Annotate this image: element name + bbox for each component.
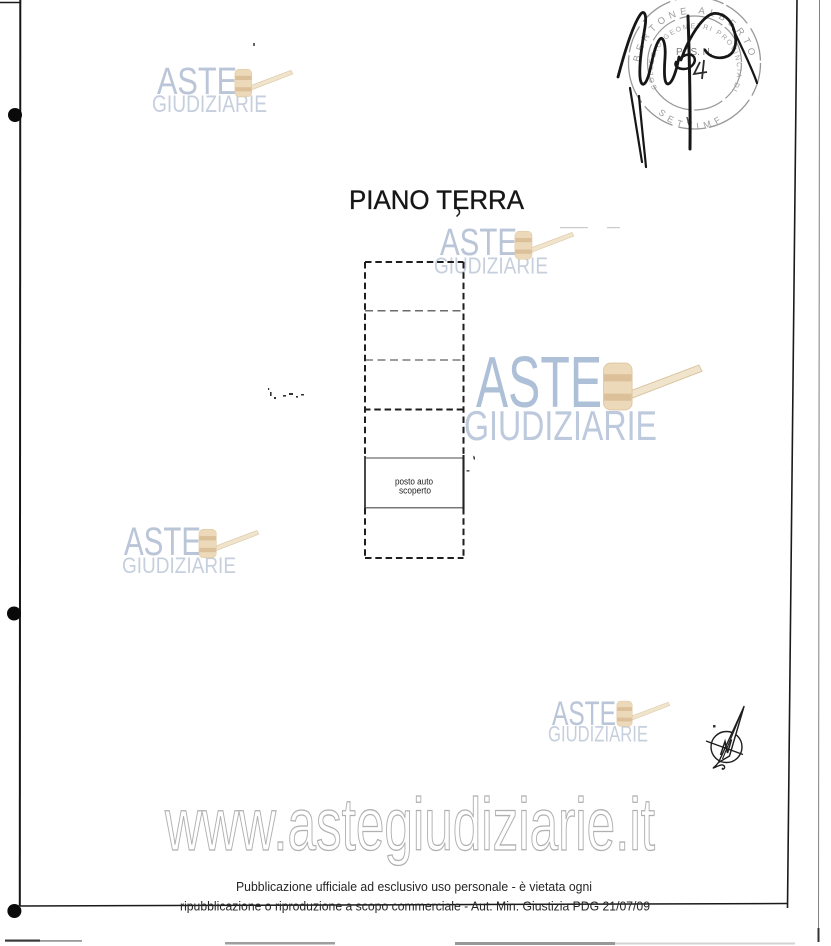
svg-text:ripubblicazione o riproduzione: ripubblicazione o riproduzione a scopo c… — [180, 900, 650, 914]
svg-text:GIUDIZIARIE: GIUDIZIARIE — [122, 553, 236, 578]
svg-text:Pubblicazione ufficiale ad esc: Pubblicazione ufficiale ad esclusivo uso… — [236, 880, 592, 894]
svg-text:PIANO TERRA: PIANO TERRA — [349, 185, 524, 215]
svg-text:GIUDIZIARIE: GIUDIZIARIE — [548, 722, 648, 747]
svg-text:www.astegiudiziarie.it: www.astegiudiziarie.it — [164, 783, 655, 866]
svg-text:scoperto: scoperto — [399, 486, 431, 496]
